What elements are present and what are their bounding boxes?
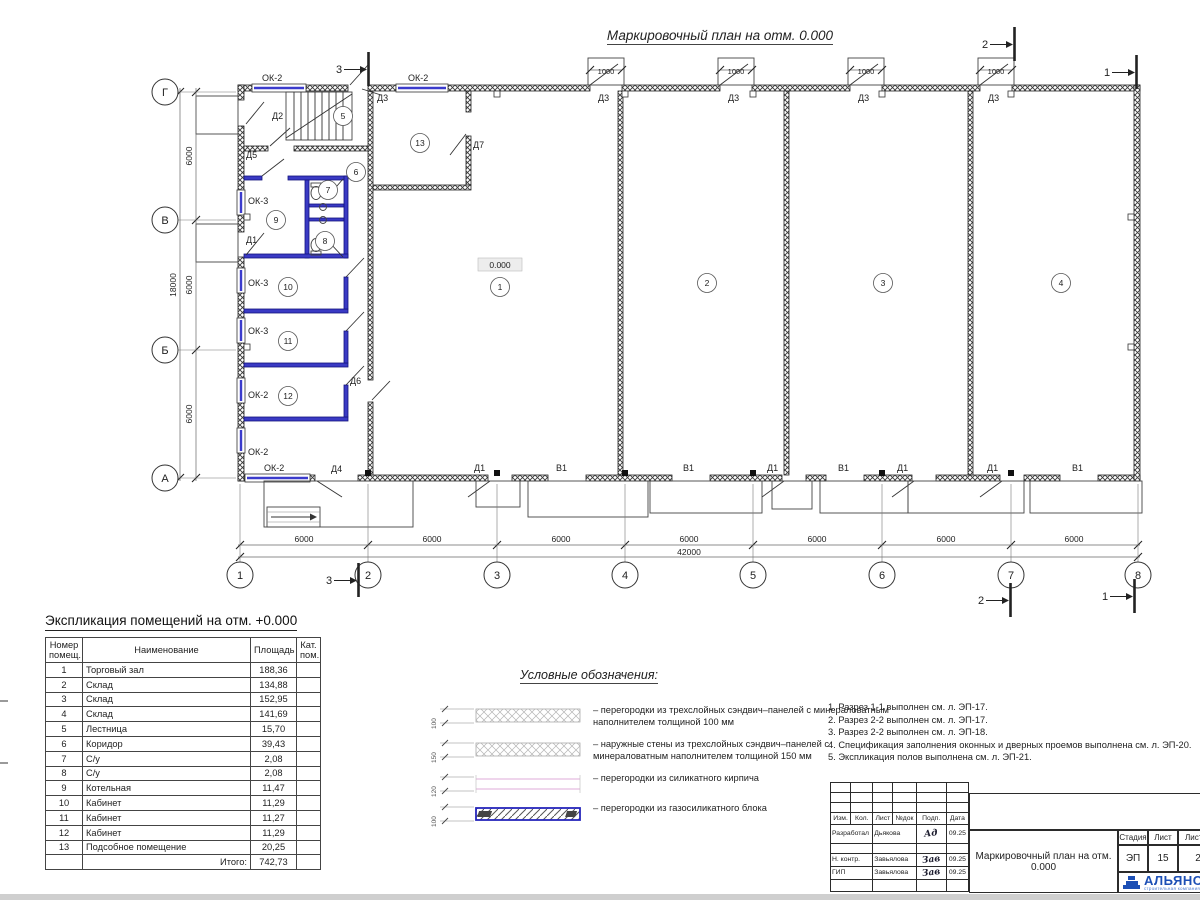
- cell-area: 11,29: [251, 796, 297, 811]
- section-flag-label: 1: [1104, 67, 1110, 79]
- plan-label: ОК-2: [262, 73, 282, 83]
- tb-stage-value: ЭП: [1118, 845, 1148, 872]
- total-label: Итого:: [83, 855, 251, 870]
- grid-bubble-label: А: [161, 473, 169, 485]
- notes: 1. Разрез 1-1 выполнен см. л. ЭП-17.2. Р…: [828, 701, 1193, 764]
- plan-label: 6000: [423, 534, 442, 544]
- sheet-bottom-edge: [0, 894, 1200, 900]
- plan-label: ОК-2: [408, 73, 428, 83]
- tb-stage-header: Стадия: [1118, 830, 1148, 845]
- cell-area: 15,70: [251, 722, 297, 737]
- plan-label: 1000: [728, 67, 745, 76]
- plan-label: Д3: [377, 93, 388, 103]
- tb-name: Завьялова: [873, 867, 916, 880]
- tb-listov-header: Листов: [1178, 830, 1200, 845]
- note-line: 1. Разрез 1-1 выполнен см. л. ЭП-17.: [828, 701, 1193, 714]
- cell-category: [297, 677, 321, 692]
- cell-name: Склад: [83, 707, 251, 722]
- company-logo: АЛЬЯНС строительная компания: [1118, 872, 1200, 893]
- total-value: 742,73: [251, 855, 297, 870]
- cell-number: 6: [46, 736, 83, 751]
- legend-swatch-brick: 120: [428, 772, 583, 798]
- cell-name: Склад: [83, 677, 251, 692]
- grid-bubble-label: 5: [750, 570, 756, 582]
- plan-label: Д5: [246, 150, 257, 160]
- cell-number: 9: [46, 781, 83, 796]
- plan-label: 1000: [598, 67, 615, 76]
- legend-item: 100– перегородки из газосиликатного блок…: [428, 802, 898, 828]
- cell-name: Подсобное помещение: [83, 840, 251, 855]
- plan-label: 1000: [988, 67, 1005, 76]
- tb-role: Н. контр.: [831, 854, 873, 867]
- room-number: 3: [881, 278, 886, 288]
- cell-number: 8: [46, 766, 83, 781]
- cell-name: Лестница: [83, 722, 251, 737]
- table-row: 12Кабинет11,29: [46, 825, 321, 840]
- cell-area: 11,27: [251, 810, 297, 825]
- plan-label: Д3: [988, 93, 999, 103]
- gas-block-partitions: [244, 176, 348, 421]
- cell-area: 20,25: [251, 840, 297, 855]
- tb-signature: Зав: [916, 867, 946, 880]
- tb-listov-value: 2: [1178, 845, 1200, 872]
- ramp-icon: [267, 507, 320, 527]
- tb-list-header: Лист: [1148, 830, 1178, 845]
- grid-bubble-label: 1: [237, 570, 243, 582]
- plan-label: ОК-3: [248, 196, 268, 206]
- table-header-row: Номер помещ. Наименование Площадь Кат. п…: [46, 638, 321, 663]
- plan-label: В1: [683, 463, 694, 473]
- table-row: 2Склад134,88: [46, 677, 321, 692]
- logo-triangle-icon: [1123, 876, 1140, 890]
- tb-header-izm: Изм.: [831, 813, 851, 825]
- plan-label: ОК-2: [248, 390, 268, 400]
- tb-header-data: Дата: [946, 813, 968, 825]
- room-number: 10: [283, 282, 293, 292]
- table-row: 3Склад152,95: [46, 692, 321, 707]
- cell-name: Котельная: [83, 781, 251, 796]
- plan-label: Д2: [272, 111, 283, 121]
- cell-area: 152,95: [251, 692, 297, 707]
- table-row: 11Кабинет11,27: [46, 810, 321, 825]
- note-line: 2. Разрез 2-2 выполнен см. л. ЭП-17.: [828, 714, 1193, 727]
- table-row: 6Коридор39,43: [46, 736, 321, 751]
- grid-bubble-label: 2: [365, 570, 371, 582]
- grid-bubble-label: 4: [622, 570, 628, 582]
- grid-bubble-label: 7: [1008, 570, 1014, 582]
- cell-number: 3: [46, 692, 83, 707]
- tb-role: ГИП: [831, 867, 873, 880]
- cell-number: 2: [46, 677, 83, 692]
- table-row: 7С/у2,08: [46, 751, 321, 766]
- cell-number: 11: [46, 810, 83, 825]
- title-block: Изм. Кол. Лист №док Подп. Дата Разработа…: [830, 782, 1200, 893]
- room-number: 13: [415, 138, 425, 148]
- plan-label: Д1: [767, 463, 778, 473]
- plan-label: Д7: [473, 140, 484, 150]
- room-schedule: Экспликация помещений на отм. +0.000 Ном…: [45, 612, 325, 870]
- col-header-area: Площадь: [251, 638, 297, 663]
- legend-swatch-sandwich: 150: [428, 738, 583, 764]
- cell-category: [297, 810, 321, 825]
- tb-header-podp: Подп.: [916, 813, 946, 825]
- section-flag-label: 1: [1102, 591, 1108, 603]
- cell-number: 7: [46, 751, 83, 766]
- plan-label: Д1: [897, 463, 908, 473]
- section-flag-arrowhead: [1002, 597, 1009, 604]
- tb-role: Разработал: [831, 825, 873, 844]
- plan-label: В1: [1072, 463, 1083, 473]
- col-header-cat: Кат. пом.: [297, 638, 321, 663]
- table-row: 9Котельная11,47: [46, 781, 321, 796]
- table-row: 1Торговый зал188,36: [46, 663, 321, 678]
- section-flag-arrowhead: [1126, 593, 1133, 600]
- cell-empty: [297, 855, 321, 870]
- cell-name: С/у: [83, 751, 251, 766]
- svg-text:150: 150: [431, 752, 438, 763]
- tb-doc-title: Маркировочный план на отм. 0.000: [969, 830, 1118, 893]
- plan-label: 6000: [184, 275, 194, 294]
- plan-label: 42000: [677, 547, 701, 557]
- table-row: 13Подсобное помещение20,25: [46, 840, 321, 855]
- tb-header-list: Лист: [873, 813, 893, 825]
- cell-name: С/у: [83, 766, 251, 781]
- room-number: 9: [274, 215, 279, 225]
- grid-bubble-label: Б: [161, 345, 168, 357]
- cell-category: [297, 736, 321, 751]
- cell-name: Кабинет: [83, 825, 251, 840]
- plan-label: 1000: [858, 67, 875, 76]
- tb-signature: Зав: [916, 854, 946, 867]
- logo-name: АЛЬЯНС: [1144, 875, 1200, 886]
- section-flag-label: 3: [336, 64, 342, 76]
- cell-area: 141,69: [251, 707, 297, 722]
- cell-name: Склад: [83, 692, 251, 707]
- room-number: 8: [323, 236, 328, 246]
- dimension-lines: [176, 88, 1142, 561]
- tb-header-kol: Кол.: [851, 813, 873, 825]
- section-flag-arrowhead: [1006, 41, 1013, 48]
- cell-number: 5: [46, 722, 83, 737]
- tb-name: Завьялова: [873, 854, 916, 867]
- note-line: 5. Экспликация полов выполнена см. л. ЭП…: [828, 751, 1193, 764]
- cell-number: 1: [46, 663, 83, 678]
- plan-label: Д6: [350, 376, 361, 386]
- tb-date: 09.25: [946, 854, 968, 867]
- room-number: 7: [326, 185, 331, 195]
- room-number: 6: [354, 167, 359, 177]
- grid-bubble-label: 3: [494, 570, 500, 582]
- cell-number: 4: [46, 707, 83, 722]
- note-line: 3. Разрез 2-2 выполнен см. л. ЭП-18.: [828, 726, 1193, 739]
- legend-swatch-gasblock: 100: [428, 802, 583, 828]
- svg-text:120: 120: [431, 786, 438, 797]
- door-swing-lines: [246, 64, 1008, 497]
- tb-date: 09.25: [946, 867, 968, 880]
- table-total-row: Итого:742,73: [46, 855, 321, 870]
- col-header-name: Наименование: [83, 638, 251, 663]
- cell-category: [297, 663, 321, 678]
- grid-bubble-label: 6: [879, 570, 885, 582]
- cell-area: 188,36: [251, 663, 297, 678]
- col-header-number: Номер помещ.: [46, 638, 83, 663]
- plan-label: В1: [556, 463, 567, 473]
- plan-label: 6000: [808, 534, 827, 544]
- room-number: 5: [341, 111, 346, 121]
- svg-text:100: 100: [431, 718, 438, 729]
- cell-category: [297, 825, 321, 840]
- room-number: 1: [498, 282, 503, 292]
- grid-bubble-label: 8: [1135, 570, 1141, 582]
- plan-label: ОК-2: [264, 463, 284, 473]
- plan-label: Д3: [858, 93, 869, 103]
- room-number: 11: [284, 336, 293, 346]
- svg-text:100: 100: [431, 816, 438, 827]
- table-row: 8С/у2,08: [46, 766, 321, 781]
- sheet-edge-mark: [0, 700, 8, 702]
- plan-annotations: ГВБА12345678ОК-2ОК-2Д3Д3Д3Д3Д31000100010…: [152, 27, 1151, 617]
- plan-label: Д3: [728, 93, 739, 103]
- cell-category: [297, 781, 321, 796]
- room-number: 4: [1059, 278, 1064, 288]
- cell-number: 13: [46, 840, 83, 855]
- cell-name: Кабинет: [83, 796, 251, 811]
- plan-label: ОК-3: [248, 326, 268, 336]
- table-row: 5Лестница15,70: [46, 722, 321, 737]
- room-number: 2: [705, 278, 710, 288]
- section-flag-arrowhead: [1128, 69, 1135, 76]
- cell-name: Торговый зал: [83, 663, 251, 678]
- cell-area: 11,29: [251, 825, 297, 840]
- section-flag-label: 2: [978, 595, 984, 607]
- tb-date: 09.25: [946, 825, 968, 844]
- room-schedule-table: Номер помещ. Наименование Площадь Кат. п…: [45, 637, 321, 870]
- cell-category: [297, 751, 321, 766]
- section-flag-label: 3: [326, 575, 332, 587]
- cell-category: [297, 796, 321, 811]
- plan-label: 6000: [184, 146, 194, 165]
- title-block-left: Изм. Кол. Лист №док Подп. Дата Разработа…: [830, 782, 969, 892]
- plan-label: Д1: [246, 235, 257, 245]
- plan-label: 6000: [680, 534, 699, 544]
- cell-name: Кабинет: [83, 810, 251, 825]
- plan-label: Д1: [474, 463, 485, 473]
- drawing-sheet: Маркировочный план на отм. 0.000 .w{fill…: [0, 0, 1200, 900]
- legend-title: Условные обозначения:: [520, 668, 658, 684]
- cell-empty: [46, 855, 83, 870]
- table-row: 4Склад141,69: [46, 707, 321, 722]
- tb-signature: Ад: [916, 825, 946, 844]
- plan-label: Д3: [598, 93, 609, 103]
- tb-header-dok: №док: [893, 813, 916, 825]
- floor-plan-svg: .w{fill:url(#wh);stroke:#222;stroke-widt…: [0, 0, 1200, 620]
- plan-label: 0.000: [489, 260, 511, 270]
- cell-category: [297, 766, 321, 781]
- grid-bubble-label: В: [161, 215, 168, 227]
- cell-area: 134,88: [251, 677, 297, 692]
- cell-category: [297, 692, 321, 707]
- logo-subtitle: строительная компания: [1144, 886, 1200, 891]
- cell-area: 11,47: [251, 781, 297, 796]
- plan-label: 18000: [168, 273, 178, 297]
- room-schedule-title: Экспликация помещений на отм. +0.000: [45, 613, 297, 631]
- tb-list-value: 15: [1148, 845, 1178, 872]
- cell-name: Коридор: [83, 736, 251, 751]
- cell-category: [297, 722, 321, 737]
- interior-walls: [244, 91, 973, 475]
- tb-empty-cell: [969, 793, 1200, 830]
- plan-label: В1: [838, 463, 849, 473]
- tb-name: Дьякова: [873, 825, 916, 844]
- plan-label: Д1: [987, 463, 998, 473]
- plan-label: 6000: [295, 534, 314, 544]
- plan-label: 6000: [937, 534, 956, 544]
- note-line: 4. Спецификация заполнения оконных и две…: [828, 739, 1193, 752]
- table-row: 10Кабинет11,29: [46, 796, 321, 811]
- plan-label: 6000: [1065, 534, 1084, 544]
- cell-number: 12: [46, 825, 83, 840]
- section-flag-label: 2: [982, 39, 988, 51]
- cell-area: 39,43: [251, 736, 297, 751]
- grid-bubble-label: Г: [162, 87, 168, 99]
- legend-swatch-sandwich: 100: [428, 704, 583, 730]
- cell-area: 2,08: [251, 751, 297, 766]
- plan-label: ОК-2: [248, 447, 268, 457]
- cell-number: 10: [46, 796, 83, 811]
- plan-label: 6000: [184, 404, 194, 423]
- cell-area: 2,08: [251, 766, 297, 781]
- column-markers: [244, 91, 1134, 476]
- cell-category: [297, 707, 321, 722]
- sheet-edge-mark: [0, 762, 8, 764]
- room-number: 12: [283, 391, 293, 401]
- plan-label: 6000: [552, 534, 571, 544]
- cell-category: [297, 840, 321, 855]
- plan-label: ОК-3: [248, 278, 268, 288]
- plan-label: Д4: [331, 464, 342, 474]
- exterior-landings: [264, 481, 1142, 527]
- legend-item: 120– перегородки из силикатного кирпича: [428, 772, 898, 798]
